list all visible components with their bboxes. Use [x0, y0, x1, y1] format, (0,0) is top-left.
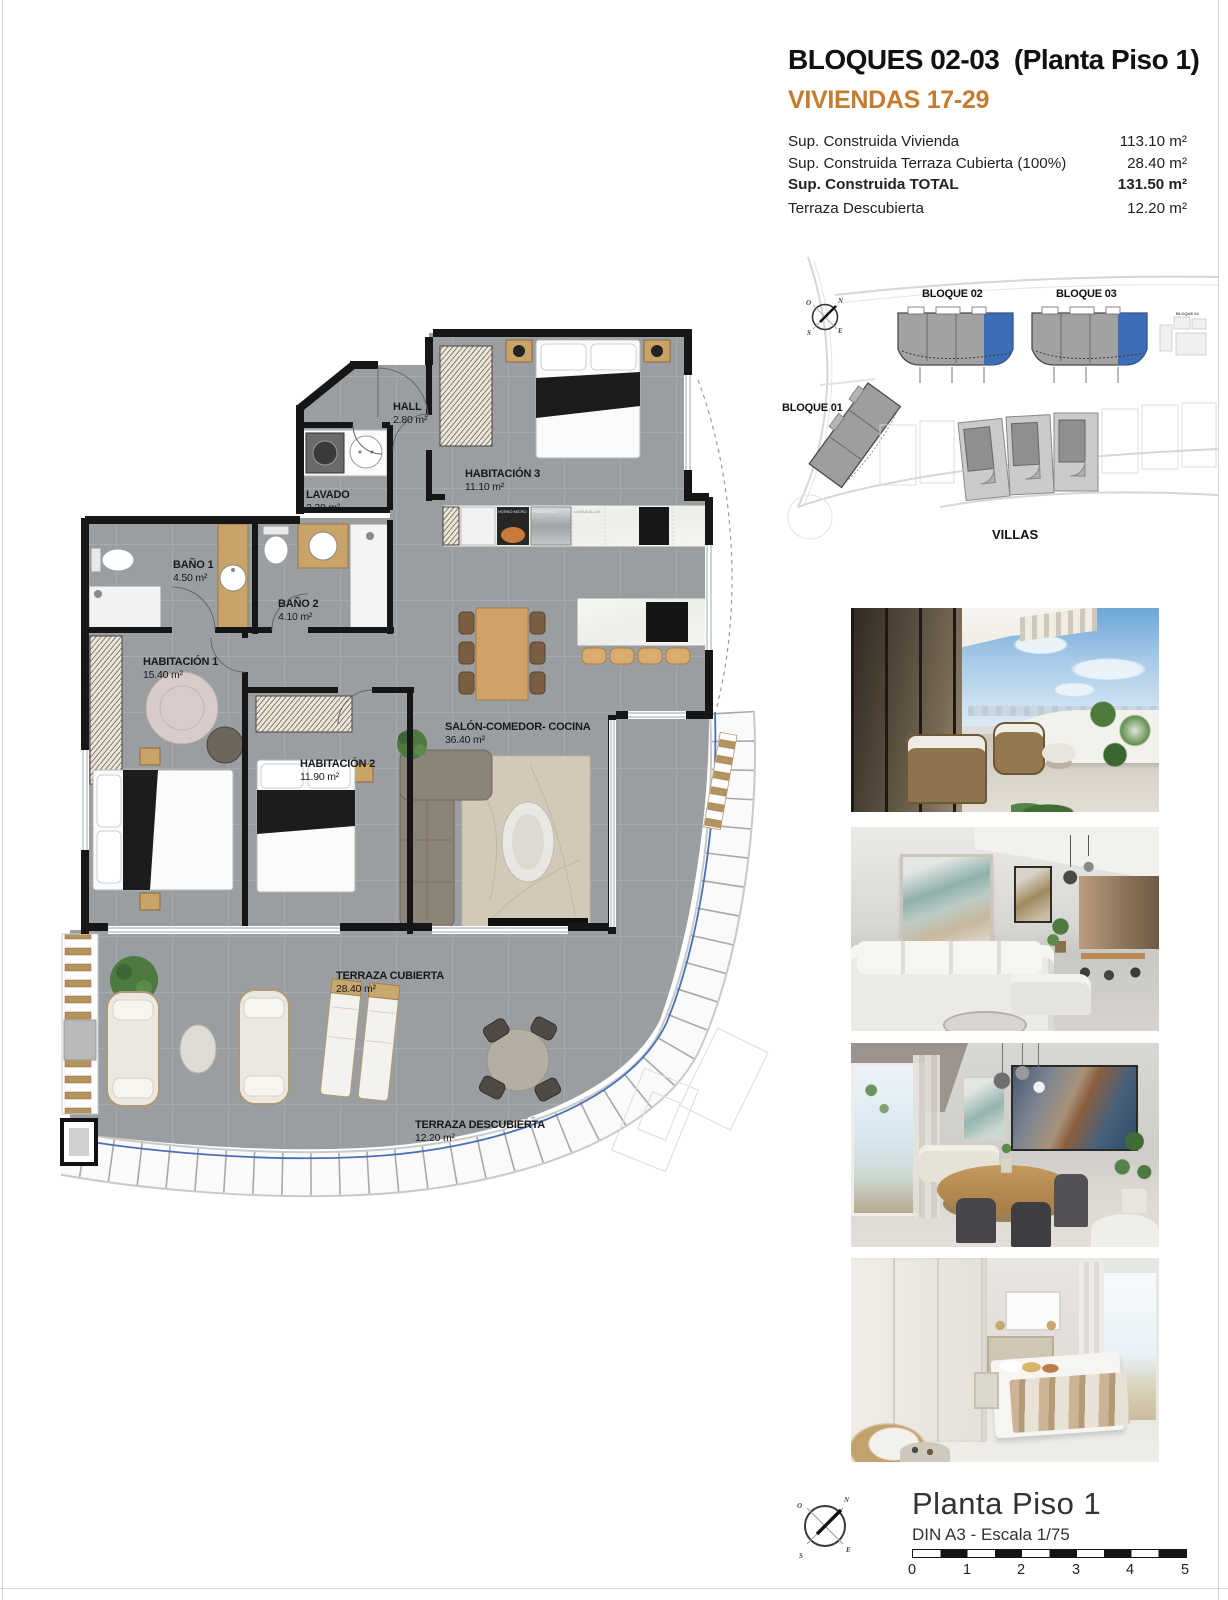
room-label: TERRAZA CUBIERTA — [336, 970, 444, 982]
p1-wicker-sofa — [906, 734, 986, 803]
area-row: Terraza Descubierta 12.20 m² — [788, 200, 1187, 217]
scale-tick: 5 — [1174, 1562, 1196, 1578]
compass-n: N — [843, 1496, 850, 1504]
photo-bedroom — [851, 1258, 1159, 1462]
floor-plan: HORNO MICRO FRIGORIFICO LAVAVAJILLAS — [60, 320, 770, 1210]
room-area: 28.40 m² — [336, 983, 377, 995]
kitchen-island — [577, 598, 709, 664]
compass-e: E — [845, 1546, 851, 1554]
room-area: 4.10 m² — [278, 611, 313, 623]
bedroom3-furniture — [440, 340, 670, 458]
p4-bench — [974, 1372, 999, 1409]
p3-curtain — [913, 1055, 941, 1218]
room-label: SALÓN-COMEDOR- COCINA — [445, 720, 591, 733]
label-bloque02: BLOQUE 02 — [922, 288, 983, 300]
area-value: 131.50 m² — [1118, 176, 1187, 193]
page-border-bottom — [0, 1588, 1228, 1589]
area-row: Sup. Construida Terraza Cubierta (100%) … — [788, 155, 1187, 172]
room-label: HABITACIÓN 1 — [143, 655, 218, 668]
area-row: Sup. Construida Vivienda 113.10 m² — [788, 133, 1187, 150]
room-area: 2.20 m² — [306, 502, 341, 514]
area-value: 12.20 m² — [1127, 200, 1187, 217]
p1-side-table — [1042, 743, 1076, 763]
page-border-left — [2, 0, 3, 1600]
label-bloque01: BLOQUE 01 — [782, 402, 843, 414]
room-area: 11.90 m² — [300, 771, 340, 783]
area-label: Sup. Construida Vivienda — [788, 133, 959, 150]
p2-art-large — [900, 854, 992, 946]
scale-tick: 1 — [956, 1562, 978, 1578]
footer-scale-note: DIN A3 - Escala 1/75 — [912, 1525, 1070, 1545]
label-bloque03: BLOQUE 03 — [1056, 288, 1117, 300]
dining-table — [459, 608, 545, 700]
room-area: 11.10 m² — [465, 481, 505, 493]
label-villas: VILLAS — [992, 527, 1039, 542]
room-area: 36.40 m² — [445, 734, 486, 746]
p2-pendants — [1048, 835, 1122, 888]
p3-chair2 — [1011, 1202, 1051, 1247]
scale-tick: 2 — [1010, 1562, 1032, 1578]
scale-tick: 3 — [1065, 1562, 1087, 1578]
site-plan: N O S E — [780, 255, 1220, 545]
p3-pendants — [974, 1043, 1066, 1108]
p1-greenery — [1079, 690, 1159, 772]
compass-s: S — [799, 1552, 803, 1560]
room-label: HABITACIÓN 3 — [465, 467, 540, 480]
scale-tick: 0 — [901, 1562, 923, 1578]
room-label: TERRAZA DESCUBIERTA — [415, 1119, 545, 1131]
compass-e: E — [837, 327, 843, 335]
page-title: BLOQUES 02-03 (Planta Piso 1) — [788, 44, 1199, 76]
compass-o: O — [806, 299, 811, 307]
p1-wicker-chair — [993, 722, 1045, 775]
p3-window-palm — [854, 1072, 897, 1133]
room-label: HABITACIÓN 2 — [300, 757, 375, 770]
area-label: Terraza Descubierta — [788, 200, 924, 217]
room-area: 12.20 m² — [415, 1132, 456, 1144]
compass-n: N — [837, 297, 844, 305]
page-subtitle: VIVIENDAS 17-29 — [788, 86, 989, 115]
area-value: 113.10 m² — [1120, 133, 1187, 150]
room-label: BAÑO 2 — [278, 597, 318, 610]
photo-living-room — [851, 827, 1159, 1031]
site-building-bloque02 — [898, 307, 1013, 383]
exterior-planters — [62, 1120, 96, 1164]
label-dishwasher: LAVAVAJILLAS — [574, 509, 601, 514]
area-label: Sup. Construida TOTAL — [788, 176, 959, 193]
p3-chair3 — [1054, 1174, 1088, 1227]
p4-fg-table — [900, 1442, 949, 1462]
photo-terrace-view — [851, 608, 1159, 812]
site-roads — [798, 257, 1218, 507]
room-label: BAÑO 1 — [173, 558, 213, 571]
label-oven: HORNO MICRO — [498, 509, 527, 514]
room-label: LAVADO — [306, 489, 350, 501]
p1-fg-palm — [1011, 779, 1085, 812]
area-row-total: Sup. Construida TOTAL 131.50 m² — [788, 176, 1187, 193]
label-fridge: FRIGORIFICO — [532, 509, 558, 514]
site-bloque04-cluster — [1160, 317, 1206, 355]
scale-bar — [912, 1549, 1187, 1558]
site-villas — [958, 413, 1098, 501]
p2-chaise — [1011, 974, 1091, 1015]
area-value: 28.40 m² — [1127, 155, 1187, 172]
brochure-page: { "header": { "title": "BLOQUES 02-03 (P… — [0, 0, 1228, 1600]
p3-vase — [993, 1141, 1021, 1178]
site-building-bloque03 — [1032, 307, 1147, 383]
scale-tick: 4 — [1119, 1562, 1141, 1578]
page-border-right — [1218, 0, 1219, 1600]
kitchen-counter: HORNO MICRO FRIGORIFICO LAVAVAJILLAS — [443, 505, 709, 547]
footer-title: Planta Piso 1 — [912, 1486, 1101, 1522]
footer-compass: N O S E — [794, 1488, 860, 1564]
area-label: Sup. Construida Terraza Cubierta (100%) — [788, 155, 1066, 172]
p3-fg-chair — [1091, 1214, 1159, 1247]
p3-chair1 — [956, 1198, 996, 1243]
area-table: Sup. Construida Vivienda 113.10 m² Sup. … — [788, 133, 1187, 222]
site-building-bloque01 — [804, 379, 903, 489]
room-area: 4.50 m² — [173, 572, 208, 584]
compass-o: O — [797, 1502, 802, 1510]
room-area: 15.40 m² — [143, 669, 184, 681]
p4-pillows — [996, 1354, 1064, 1378]
living-area-furniture — [397, 729, 590, 928]
room-area: 2.80 m² — [393, 414, 428, 426]
label-bloque04: BLOQUE 04 — [1176, 311, 1199, 316]
p4-blanket — [1009, 1372, 1129, 1433]
p3-plant — [1110, 1121, 1159, 1223]
photo-dining-area — [851, 1043, 1159, 1247]
compass-s: S — [807, 329, 811, 337]
room-label: HALL — [393, 401, 422, 413]
p2-sofa-cushions — [857, 941, 1042, 974]
